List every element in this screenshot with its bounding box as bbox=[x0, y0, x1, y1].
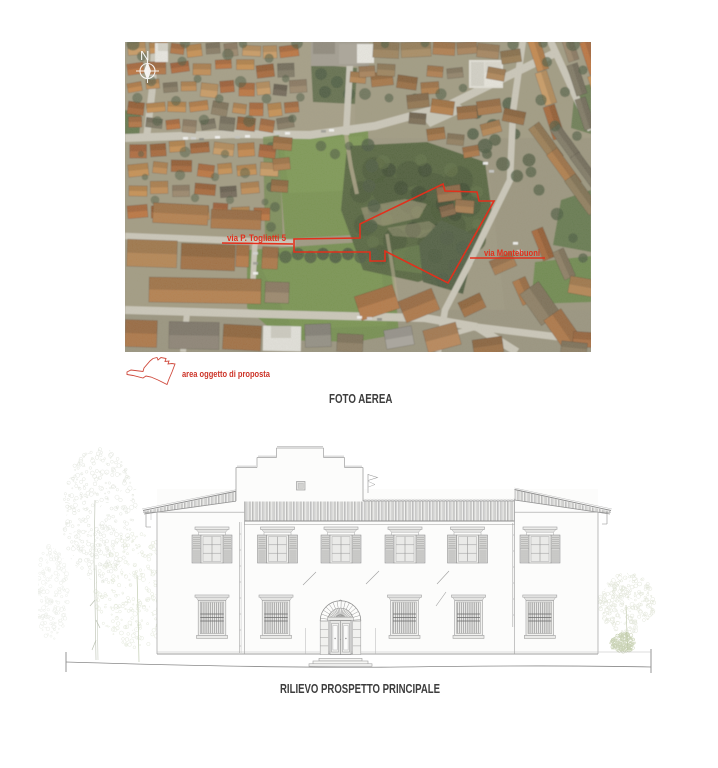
svg-text:N: N bbox=[140, 48, 149, 63]
svg-text:via Montebuoni: via Montebuoni bbox=[484, 248, 540, 258]
svg-text:via P. Togliatti 5: via P. Togliatti 5 bbox=[227, 233, 286, 243]
